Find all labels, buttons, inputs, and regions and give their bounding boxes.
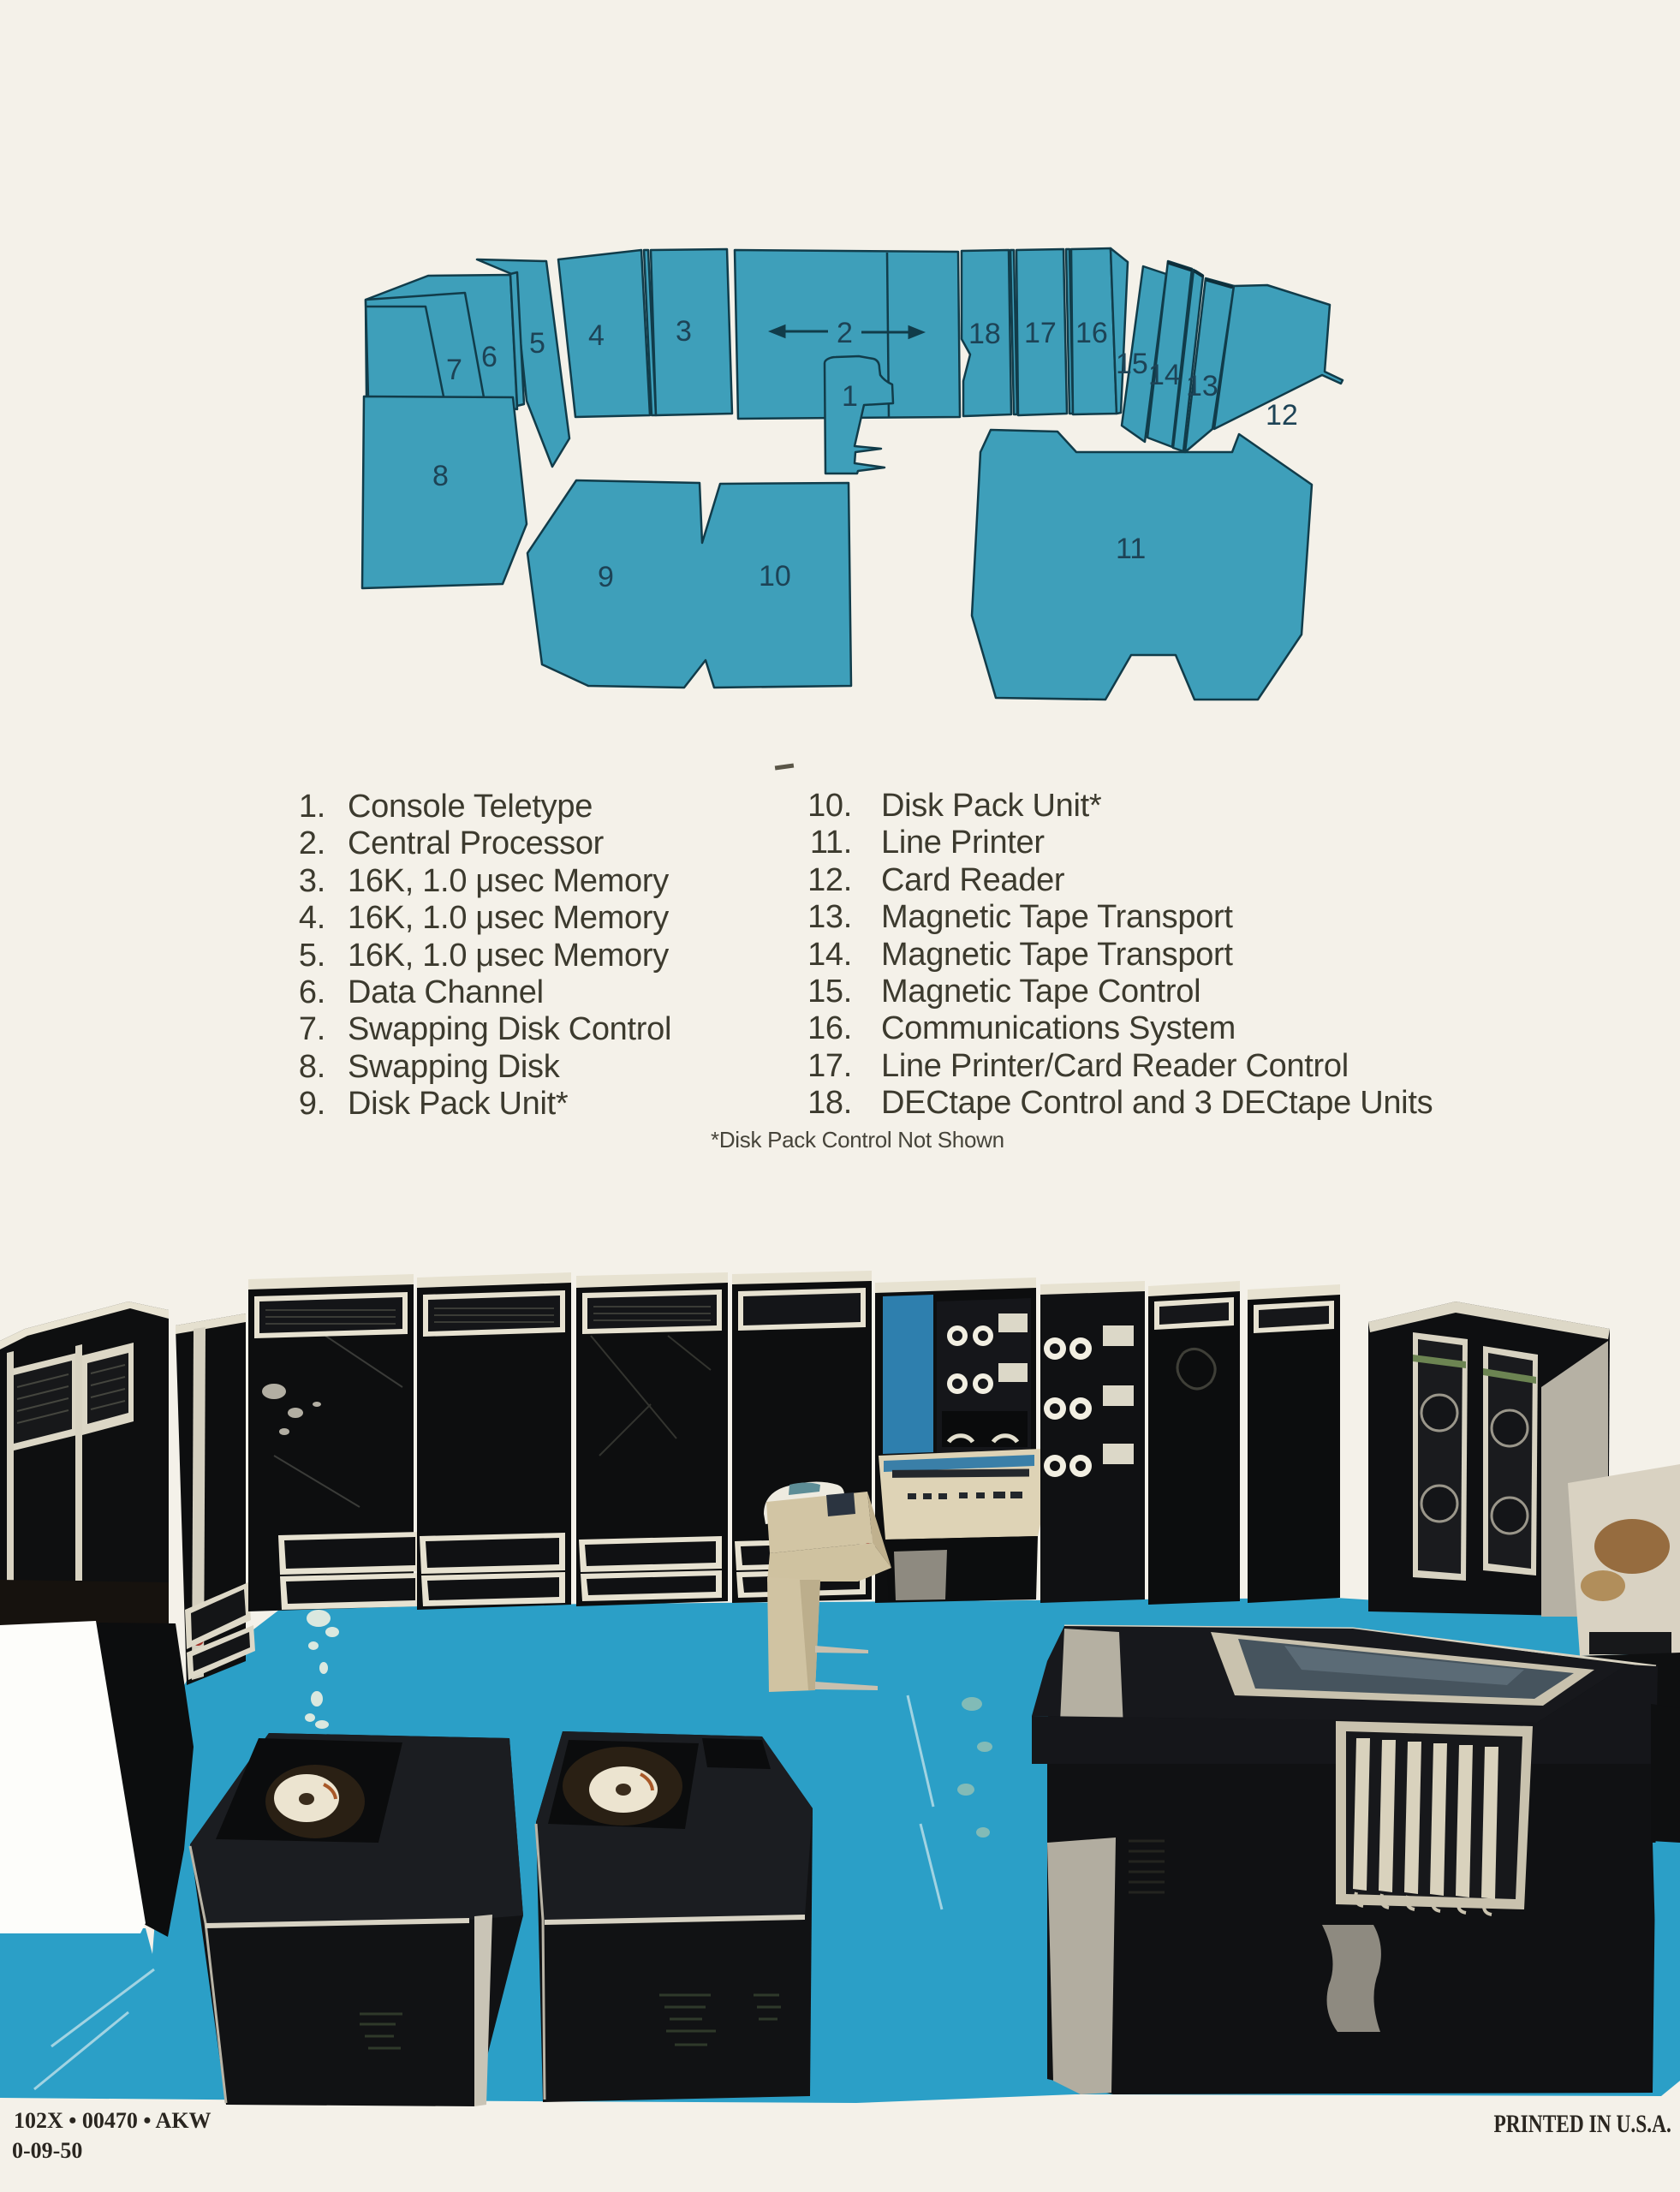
svg-text:5: 5 [529, 327, 545, 360]
svg-text:2: 2 [837, 317, 853, 349]
svg-text:1: 1 [842, 380, 858, 413]
svg-text:3: 3 [676, 315, 692, 348]
svg-text:16: 16 [1075, 317, 1108, 349]
svg-text:4: 4 [588, 319, 605, 352]
svg-text:6: 6 [481, 341, 497, 373]
svg-text:13: 13 [1186, 370, 1218, 402]
svg-text:11: 11 [1116, 533, 1146, 565]
svg-text:9: 9 [598, 561, 614, 593]
svg-text:17: 17 [1024, 317, 1057, 349]
svg-text:10: 10 [759, 560, 791, 593]
svg-text:14: 14 [1148, 359, 1181, 391]
svg-text:7: 7 [446, 354, 462, 386]
svg-text:15: 15 [1116, 348, 1148, 380]
svg-text:8: 8 [432, 460, 449, 492]
svg-text:12: 12 [1266, 399, 1298, 432]
svg-text:18: 18 [968, 318, 1001, 350]
